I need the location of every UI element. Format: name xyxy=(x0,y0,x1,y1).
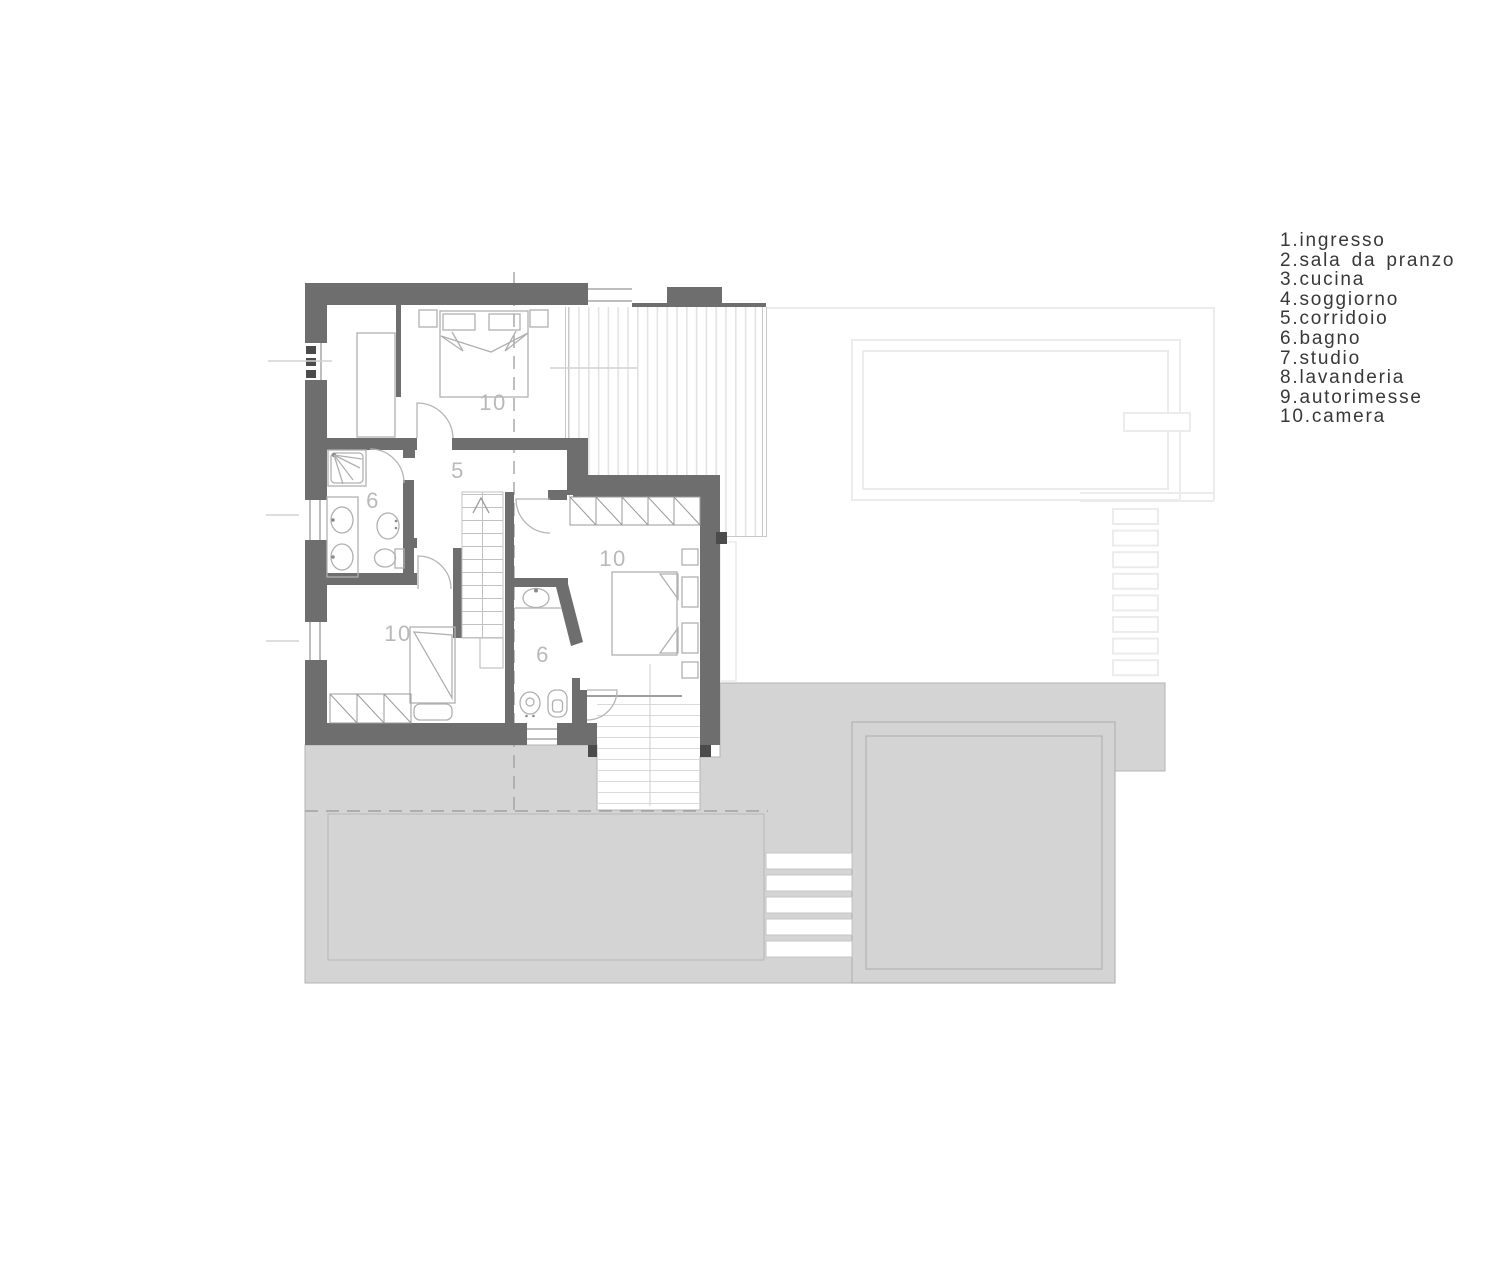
room-label-bagno-small: 6 xyxy=(536,642,550,667)
shower xyxy=(328,450,366,486)
door-camera-top xyxy=(417,403,453,438)
bidet xyxy=(548,690,567,717)
garden-steps xyxy=(1113,509,1158,675)
window-left-3 xyxy=(310,622,320,660)
wall-smallbath-angled xyxy=(555,580,583,646)
wall-dressing xyxy=(396,305,401,397)
toilet xyxy=(375,549,405,568)
terrace-hatch xyxy=(568,307,762,537)
wall-smallbath-stub xyxy=(572,678,580,690)
wall-top-pier xyxy=(667,287,722,305)
legend-item: 1.ingresso xyxy=(1280,231,1455,251)
wall-cap-stair-left xyxy=(588,745,597,757)
wall-bath-bottom xyxy=(327,573,417,585)
window-top xyxy=(588,289,632,301)
wardrobe-outline xyxy=(357,333,395,437)
wall-left-1 xyxy=(305,283,327,343)
legend-item: 4.soggiorno xyxy=(1280,290,1455,310)
legend-item: 5.corridoio xyxy=(1280,309,1455,329)
bathroom-left-fixtures xyxy=(327,450,404,577)
sink xyxy=(331,507,353,533)
wall-bath-stub xyxy=(403,443,415,458)
floor-plan-page: 10 5 6 10 10 6 1.ingresso 2.sala da pran… xyxy=(0,0,1500,1270)
door-camera-right xyxy=(516,499,550,533)
legend-item: 2.sala da pranzo xyxy=(1280,251,1455,271)
wall-top xyxy=(305,283,588,305)
sink xyxy=(515,589,562,609)
floor-plan-drawing: 10 5 6 10 10 6 xyxy=(0,0,1500,1270)
pool-step xyxy=(1124,413,1190,431)
legend: 1.ingresso 2.sala da pranzo 3.cucina 4.s… xyxy=(1280,231,1455,427)
vanity-counter xyxy=(327,497,358,577)
bed-single xyxy=(410,627,455,720)
lower-wall-edge xyxy=(720,542,736,681)
room-label-camera-right: 10 xyxy=(599,546,626,571)
window-bottom xyxy=(527,729,557,739)
wall-bath-pier xyxy=(405,538,417,548)
wall-left-2 xyxy=(305,380,327,500)
legend-item: 10.camera xyxy=(1280,407,1455,427)
footprint-outline xyxy=(767,308,1214,501)
wall-bedroom-top xyxy=(573,475,720,497)
pool-inner-outline xyxy=(863,351,1168,489)
ground-floor-outline xyxy=(720,308,1214,681)
exterior-stair-treads xyxy=(597,700,700,808)
driveway-steps xyxy=(766,853,852,957)
window-mullion-blocks xyxy=(306,346,316,378)
wall-smallbath-jamb xyxy=(572,690,587,727)
door-bagno-left xyxy=(370,449,404,483)
bidet xyxy=(377,513,399,539)
wall-cap-stair-right xyxy=(700,745,711,757)
wall-stairwell-left xyxy=(453,548,462,638)
toilet xyxy=(520,692,540,717)
legend-item: 9.autorimesse xyxy=(1280,388,1455,408)
room-label-camera-left: 10 xyxy=(384,621,411,646)
legend-item: 6.bagno xyxy=(1280,329,1455,349)
wall-corridor-corner xyxy=(567,438,588,495)
room-label-corridoio: 5 xyxy=(451,458,465,483)
legend-item: 8.lavanderia xyxy=(1280,368,1455,388)
legend-item: 7.studio xyxy=(1280,349,1455,369)
wardrobe-hatch-right xyxy=(570,497,700,525)
legend-item: 3.cucina xyxy=(1280,270,1455,290)
door-camera-left xyxy=(418,556,451,589)
wardrobe-hatch-left xyxy=(330,694,411,723)
wall-cap-terrace xyxy=(716,532,727,544)
sink xyxy=(331,544,353,570)
stair-landing xyxy=(480,638,503,668)
wall-bottom-1 xyxy=(305,723,527,745)
window-left-2 xyxy=(310,500,320,540)
exterior-stairs xyxy=(587,664,700,808)
room-label-bagno-left: 6 xyxy=(366,488,380,513)
interior-stairs xyxy=(462,492,503,668)
wall-door-jamb xyxy=(548,490,567,500)
wall-stairwell xyxy=(505,492,514,727)
wall-left-3 xyxy=(305,540,327,622)
room-label-camera-top: 10 xyxy=(479,390,506,415)
bed-double-top xyxy=(419,310,548,397)
